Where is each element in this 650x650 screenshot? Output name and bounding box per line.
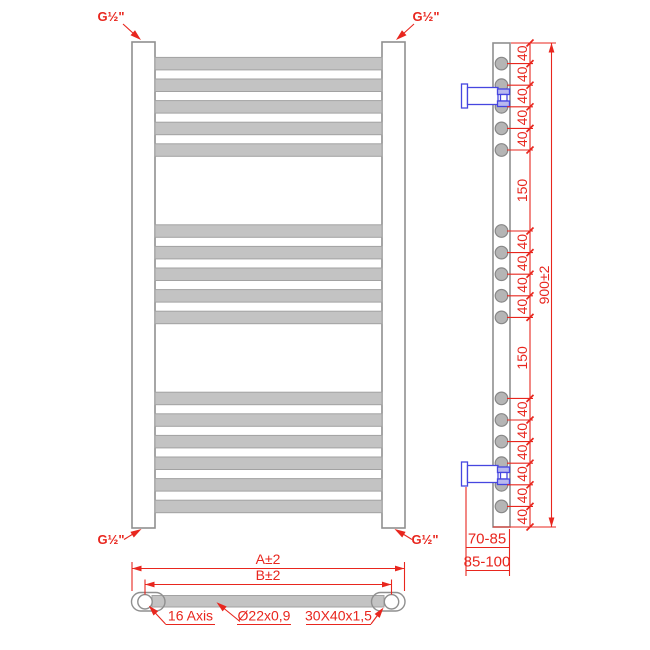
rung <box>155 101 382 114</box>
rung <box>155 457 382 470</box>
rung-tube-spec-label: Ø22x0,9 <box>238 608 291 624</box>
leader-line <box>403 24 414 34</box>
arrow-left <box>145 582 155 588</box>
front-view <box>132 42 405 528</box>
bracket-clamp <box>498 467 510 473</box>
bracket-wall-plate <box>462 84 468 108</box>
axis-note-label: 16 Axis <box>168 608 213 624</box>
wall-clearance-min-label: 70-85 <box>468 531 506 548</box>
leader-line <box>124 534 133 540</box>
rung-group-top <box>155 57 382 156</box>
bracket-clamp <box>498 89 510 95</box>
dim-label-40: 40 <box>514 401 530 417</box>
dim-label-150: 150 <box>514 179 530 203</box>
side-tube-profile <box>493 43 510 527</box>
rung-end <box>495 122 508 135</box>
bracket-clamp-waist <box>501 473 508 480</box>
radiator-technical-drawing: G½" G½" G½" G½" <box>0 0 650 650</box>
dim-label-150: 150 <box>514 346 530 370</box>
port-label-top-left: G½" <box>97 9 124 24</box>
rung <box>155 122 382 135</box>
rung-end <box>495 311 508 324</box>
leader-line <box>123 24 134 34</box>
rung-end <box>495 290 508 303</box>
arrow-up <box>549 43 555 53</box>
rung <box>155 268 382 281</box>
dim-label-40: 40 <box>514 299 530 315</box>
dim-label-40: 40 <box>514 66 530 82</box>
dim-label-40: 40 <box>514 466 530 482</box>
rung <box>155 57 382 70</box>
rung <box>155 500 382 513</box>
drawing-canvas: G½" G½" G½" G½" <box>0 0 650 650</box>
arrow-right <box>395 566 405 572</box>
rung <box>155 144 382 157</box>
rung <box>155 311 382 324</box>
right-port-hole <box>384 595 398 609</box>
front-left-tube <box>132 42 155 528</box>
rung-end <box>495 246 508 259</box>
rung <box>155 479 382 492</box>
rung <box>155 414 382 427</box>
leader-arrow <box>130 529 141 538</box>
dim-label-40: 40 <box>514 488 530 504</box>
rung-end <box>495 144 508 157</box>
rung-group-middle <box>155 225 382 324</box>
side-view <box>462 43 511 527</box>
rung <box>155 225 382 238</box>
rung-group-bottom <box>155 392 382 513</box>
center-distance-label: B±2 <box>256 567 281 583</box>
dim-label-40: 40 <box>514 88 530 104</box>
overall-height-label: 900±2 <box>536 265 552 304</box>
bracket-wall-plate <box>462 462 468 486</box>
dim-label-40: 40 <box>514 509 530 525</box>
rung-end <box>495 392 508 405</box>
front-right-tube <box>382 42 405 528</box>
bracket-arm <box>468 466 499 483</box>
overall-height-dimension: 900±2 <box>536 43 554 527</box>
dim-label-40: 40 <box>514 110 530 126</box>
port-label-top-right: G½" <box>412 9 439 24</box>
rung-top-view <box>152 596 384 608</box>
dim-label-40: 40 <box>514 444 530 460</box>
bracket-arm <box>468 88 499 105</box>
arrow-down <box>549 518 555 528</box>
overall-width-label: A±2 <box>256 551 281 567</box>
rung-end <box>495 268 508 281</box>
dim-label-40: 40 <box>514 45 530 61</box>
dim-label-40: 40 <box>514 423 530 439</box>
bracket-clamp-waist <box>501 95 508 102</box>
bracket-clamp <box>498 101 510 107</box>
rung-end <box>495 57 508 70</box>
port-label-bottom-left: G½" <box>97 532 124 547</box>
dim-label-40: 40 <box>514 277 530 293</box>
arrow-right <box>382 582 392 588</box>
profile-spec-label: 30X40x1,5 <box>305 608 372 624</box>
dim-label-40: 40 <box>514 234 530 250</box>
rung-end <box>495 225 508 238</box>
wall-clearance-max-label: 85-100 <box>464 554 511 571</box>
rung <box>155 392 382 405</box>
port-label-bottom-right: G½" <box>411 532 438 547</box>
rung-end <box>495 435 508 448</box>
rung <box>155 79 382 92</box>
dim-label-40: 40 <box>514 255 530 271</box>
rung-end <box>495 414 508 427</box>
rung <box>155 290 382 303</box>
rung <box>155 246 382 259</box>
arrow-left <box>132 566 142 572</box>
dim-label-40: 40 <box>514 131 530 147</box>
leader-arrow <box>395 529 406 538</box>
bracket-clamp <box>498 479 510 485</box>
rung <box>155 435 382 448</box>
chain-labels: 40 40 40 40 40 150 40 40 40 40 150 40 40… <box>514 45 530 524</box>
top-view-dimensions: A±2 B±2 16 Axis Ø22x0,9 30X40x1,5 <box>132 551 405 625</box>
rung-end <box>495 500 508 513</box>
